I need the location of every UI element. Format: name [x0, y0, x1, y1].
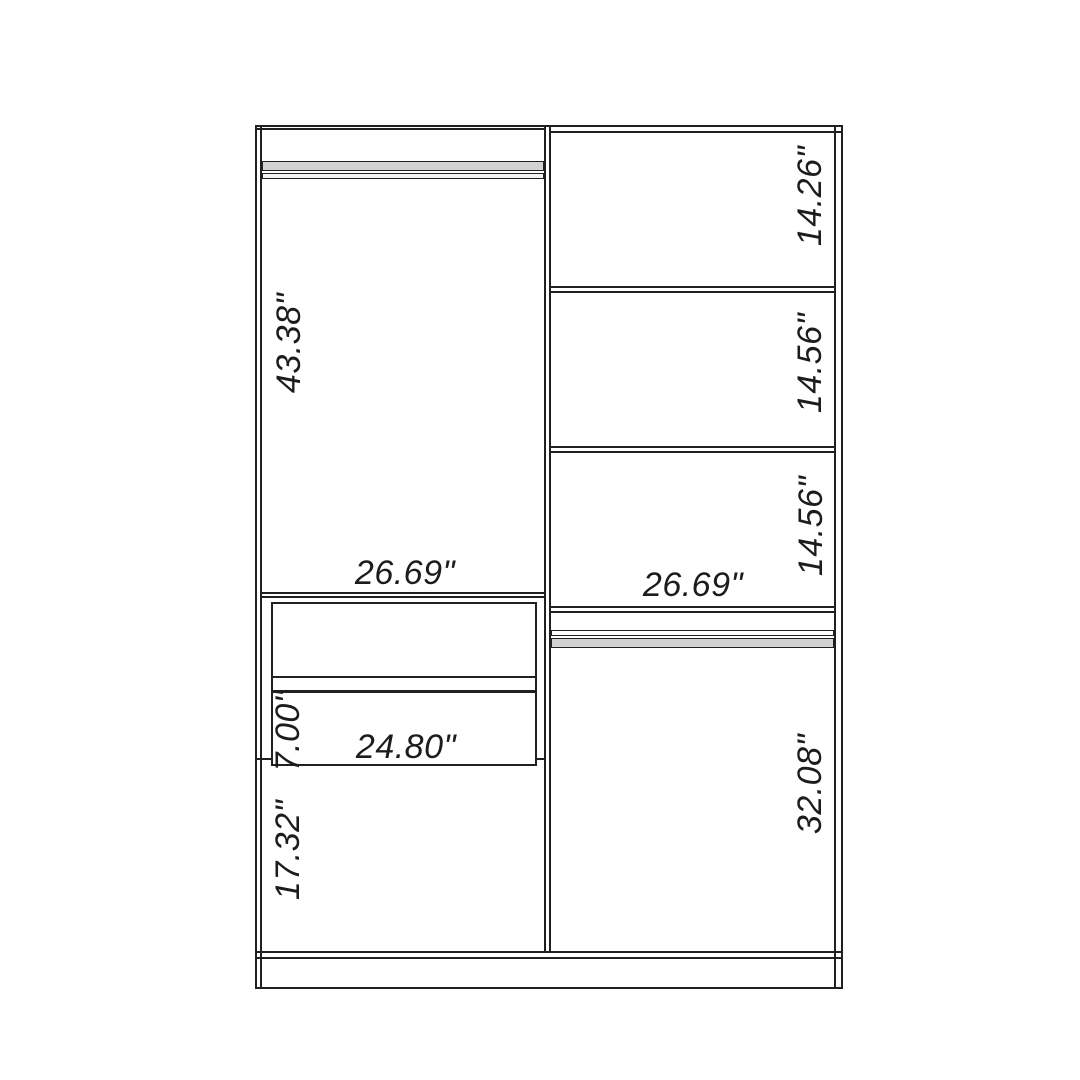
right-shelf-2-top-line: [551, 446, 834, 448]
dimension-label-right-cubby1-height: 14.26": [793, 146, 827, 246]
dimension-label-left-hanging-height: 43.38": [272, 293, 306, 393]
drawer-divider-upper-line: [273, 676, 535, 678]
left-shelf-bottom-line: [262, 596, 544, 598]
right-hanging-rod-back: [551, 630, 834, 636]
dimension-label-right-cubby3-height: 14.56": [794, 476, 828, 576]
bottom-panel-top-line: [257, 951, 841, 953]
right-wall-inner-line: [834, 127, 836, 987]
dimension-label-left-lower-height: 17.32": [271, 800, 305, 900]
drawer-divider-lower-line: [273, 690, 535, 693]
top-panel-inner-line-right: [549, 131, 841, 133]
dimension-label-right-cubby2-height: 14.56": [793, 313, 827, 413]
top-panel-inner-line-left: [257, 128, 546, 130]
wardrobe-dimension-diagram: 43.38" 26.69" 7.00" 24.80" 17.32" 14.26"…: [0, 0, 1080, 1080]
drawer-right-wall-tick: [537, 758, 546, 760]
right-shelf-3-top-line: [551, 606, 834, 608]
left-shelf-top-line: [262, 592, 544, 594]
right-shelf-2-bottom-line: [551, 451, 834, 453]
bottom-panel-bottom-line: [257, 957, 841, 959]
center-divider-line-left: [544, 127, 546, 951]
dimension-label-drawer-width: 24.80": [356, 730, 456, 764]
right-hanging-rod-front: [551, 638, 834, 648]
right-shelf-3-bottom-line: [551, 611, 834, 613]
center-divider-line-right: [549, 127, 551, 951]
left-hanging-rod-front: [262, 161, 544, 171]
dimension-label-right-hanging-height: 32.08": [793, 734, 827, 834]
dimension-label-right-width: 26.69": [643, 568, 743, 602]
dimension-label-left-width: 26.69": [355, 556, 455, 590]
right-shelf-1-bottom-line: [551, 291, 834, 293]
left-wall-inner-line: [260, 127, 262, 987]
right-shelf-1-top-line: [551, 286, 834, 288]
dimension-label-drawer-height: 7.00": [271, 691, 305, 772]
left-hanging-rod-back: [262, 173, 544, 179]
